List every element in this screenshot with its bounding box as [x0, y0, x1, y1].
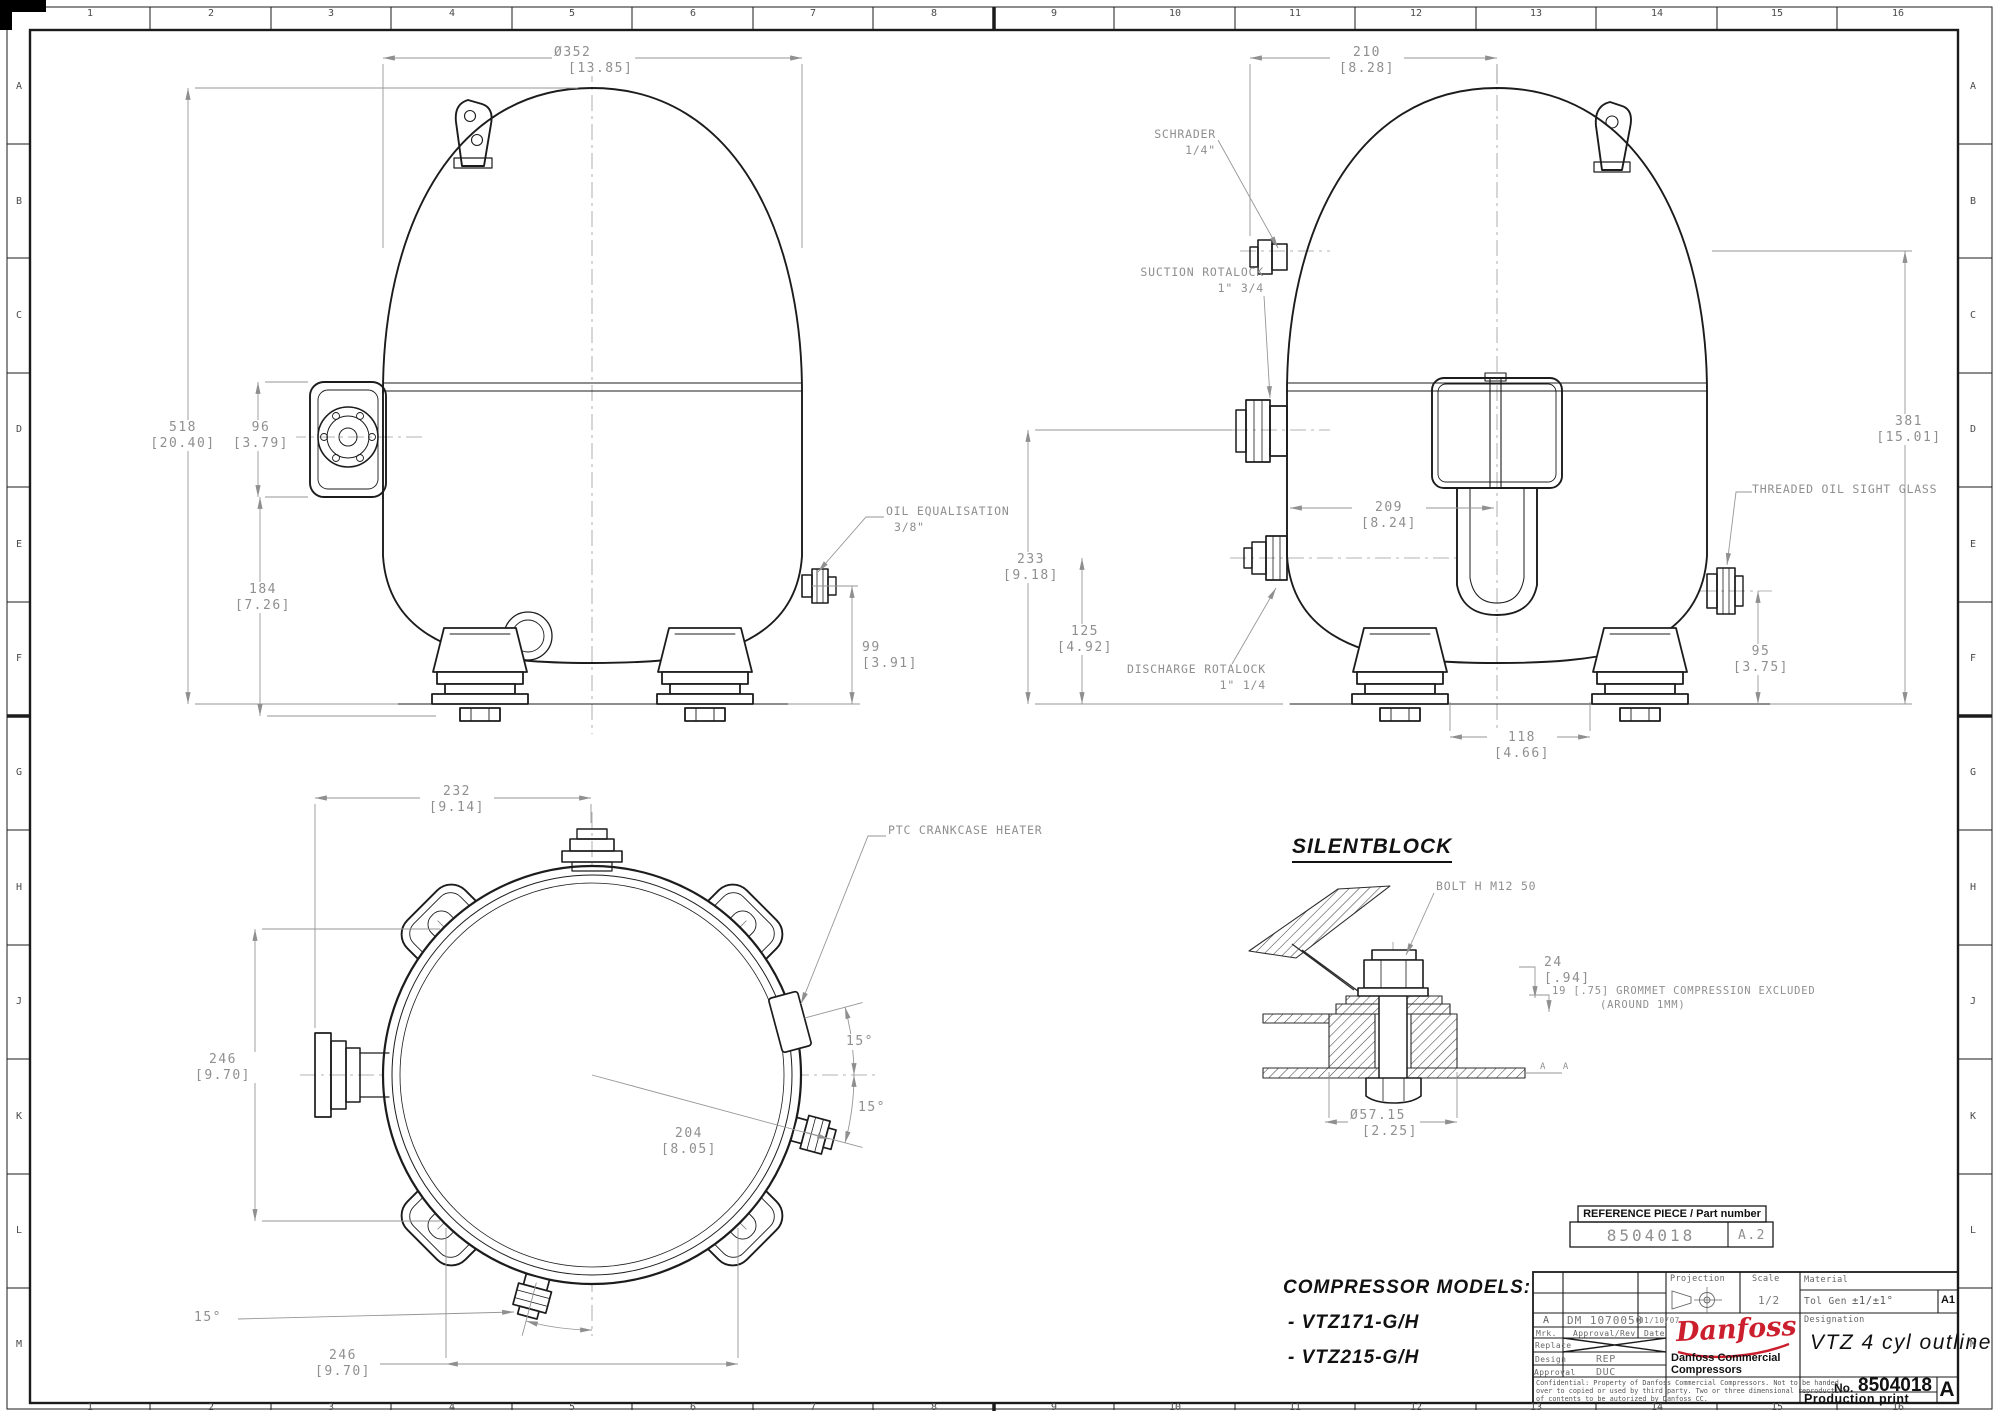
silentblock-linework: [1249, 886, 1525, 1103]
top-view-linework: [315, 829, 838, 1321]
dim-246-left: 246[9.70]: [186, 1052, 260, 1083]
silentblock-title: SILENTBLOCK: [1292, 835, 1452, 863]
danfoss-logo: Danfoss: [1675, 1311, 1797, 1348]
confidential-line3: of contents to be autorized by Danfoss C…: [1536, 1395, 1708, 1403]
zone-col-bottom: 14: [1646, 1402, 1668, 1413]
zone-col-top: 14: [1646, 8, 1668, 19]
zone-col-top: 5: [561, 8, 583, 19]
label-oil-equalisation: OIL EQUALISATION3/8": [886, 504, 1010, 535]
dim-232: 232[9.14]: [420, 784, 494, 815]
zone-col-top: 15: [1766, 8, 1788, 19]
label-bolt: BOLT H M12 50: [1436, 879, 1536, 895]
zone-col-bottom: 13: [1525, 1402, 1547, 1413]
zone-col-top: 8: [923, 8, 945, 19]
label-threaded-oil-sight-glass: THREADED OIL SIGHT GLASS: [1752, 482, 1937, 498]
zone-col-bottom: 4: [441, 1402, 463, 1413]
zone-row-left: J: [8, 996, 30, 1007]
tolerance-value: ±1/±1°: [1852, 1295, 1894, 1307]
zone-row-right: L: [1962, 1225, 1984, 1236]
zone-col-top: 6: [682, 8, 704, 19]
dim-96: 96[3.79]: [226, 420, 296, 451]
side-view-linework: [1236, 88, 1770, 721]
dim-125: 125[4.92]: [1050, 624, 1120, 655]
dim-210: 210[8.28]: [1330, 45, 1404, 76]
zone-row-right: D: [1962, 424, 1984, 435]
zone-row-right: E: [1962, 539, 1984, 550]
zone-row-right: J: [1962, 996, 1984, 1007]
zone-col-top: 10: [1164, 8, 1186, 19]
zone-row-right: F: [1962, 653, 1984, 664]
dim-204: 204[8.05]: [652, 1126, 726, 1157]
zone-col-bottom: 1: [79, 1402, 101, 1413]
zone-col-bottom: 2: [200, 1402, 222, 1413]
dim-angle-15-bottom: 15°: [192, 1310, 224, 1326]
zone-col-bottom: 15: [1766, 1402, 1788, 1413]
zone-col-top: 1: [79, 8, 101, 19]
dim-24: 24[.94]: [1542, 955, 1593, 986]
model-item-vtz215: - VTZ215-G/H: [1288, 1347, 1419, 1369]
design-value: REP: [1596, 1354, 1616, 1365]
zone-col-top: 4: [441, 8, 463, 19]
model-item-vtz171: - VTZ171-G/H: [1288, 1312, 1419, 1334]
replace-label: Replace: [1535, 1341, 1572, 1350]
label-discharge-rotalock: DISCHARGE ROTALOCK1" 1/4: [1078, 662, 1266, 693]
approval-value: DUC: [1596, 1367, 1616, 1378]
reference-part-number: 8504018: [1580, 1226, 1722, 1245]
section-marks-a-a: A A: [1538, 1062, 1576, 1073]
front-view-linework: [310, 88, 836, 721]
zone-col-bottom: 7: [802, 1402, 824, 1413]
dim-diameter-352: Ø352[13.85]: [552, 45, 635, 76]
designation-label: Designation: [1804, 1315, 1865, 1325]
designation-value: VTZ 4 cyl outline: [1810, 1331, 1992, 1355]
sheet-frame: [0, 0, 1992, 1411]
label-grommet-compression: 19 [.75] GROMMET COMPRESSION EXCLUDED(AR…: [1552, 984, 1816, 1012]
approval-rev-column-label: Approval/Rev: [1573, 1329, 1636, 1338]
date-column-label: Date: [1644, 1329, 1665, 1338]
design-label: Design: [1535, 1355, 1566, 1364]
zone-col-bottom: 3: [320, 1402, 342, 1413]
zone-col-top: 11: [1284, 8, 1306, 19]
dim-246-bottom: 246[9.70]: [306, 1348, 380, 1379]
zone-col-top: 12: [1405, 8, 1427, 19]
zone-row-left: B: [8, 196, 30, 207]
dim-118: 118[4.66]: [1487, 730, 1557, 761]
projection-label: Projection: [1670, 1274, 1725, 1284]
dim-99: 99[3.91]: [860, 640, 920, 671]
zone-row-left: K: [8, 1111, 30, 1122]
company-line1: Danfoss Commercial: [1671, 1352, 1780, 1364]
zone-row-left: C: [8, 310, 30, 321]
dim-95: 95[3.75]: [1726, 644, 1796, 675]
revision-mark: A: [1543, 1315, 1550, 1326]
zone-row-left: D: [8, 424, 30, 435]
mark-column-label: Mrk.: [1536, 1329, 1557, 1338]
sheet-revision-letter: A: [1937, 1378, 1957, 1402]
zone-row-left: M: [8, 1339, 30, 1350]
zone-row-right: B: [1962, 196, 1984, 207]
reference-revision: A.2: [1729, 1228, 1775, 1244]
revision-doc: DM 1070050: [1567, 1314, 1643, 1327]
zone-col-bottom: 5: [561, 1402, 583, 1413]
zone-col-bottom: 11: [1284, 1402, 1306, 1413]
zone-row-left: A: [8, 81, 30, 92]
zone-col-bottom: 12: [1405, 1402, 1427, 1413]
zone-row-right: H: [1962, 882, 1984, 893]
zone-row-right: G: [1962, 767, 1984, 778]
zone-col-bottom: 9: [1043, 1402, 1065, 1413]
label-schrader: SCHRADER1/4": [1100, 127, 1216, 158]
zone-row-left: L: [8, 1225, 30, 1236]
dim-233: 233[9.18]: [996, 552, 1066, 583]
zone-row-right: A: [1962, 81, 1984, 92]
material-label: Material: [1804, 1275, 1848, 1285]
dim-381: 381[15.01]: [1872, 414, 1946, 445]
zone-col-top: 3: [320, 8, 342, 19]
tolerance-label: Tol Gen: [1804, 1296, 1847, 1307]
zone-col-top: 16: [1887, 8, 1909, 19]
projection-symbol: [1672, 1287, 1722, 1313]
revision-date: 01/10/07: [1639, 1316, 1680, 1325]
zone-col-top: 13: [1525, 8, 1547, 19]
zone-col-top: 2: [200, 8, 222, 19]
dim-diameter-57-15: Ø57.15[2.25]: [1348, 1108, 1420, 1139]
approval-label: Approval: [1534, 1368, 1576, 1377]
scale-value: 1/2: [1758, 1294, 1780, 1307]
dim-209: 209[8.24]: [1352, 500, 1426, 531]
zone-row-right: C: [1962, 310, 1984, 321]
dim-angle-15-upper: 15°: [844, 1034, 876, 1050]
drawing-sheet: 1 2 3 4 5 6 7 8 9 10 11 12 13 14 15 16 1…: [0, 0, 2000, 1413]
zone-row-left: E: [8, 539, 30, 550]
label-suction-rotalock: SUCTION ROTALOCK1" 3/4: [1080, 265, 1264, 296]
zone-row-right: K: [1962, 1111, 1984, 1122]
dim-518: 518[20.40]: [146, 420, 220, 451]
drawing-linework: [0, 0, 2000, 1413]
reference-header: REFERENCE PIECE / Part number: [1578, 1208, 1766, 1220]
models-heading: COMPRESSOR MODELS:: [1283, 1277, 1531, 1299]
zone-col-bottom: 6: [682, 1402, 704, 1413]
zone-col-bottom: 8: [923, 1402, 945, 1413]
zone-row-left: H: [8, 882, 30, 893]
zone-col-top: 9: [1043, 8, 1065, 19]
dim-angle-15-lower: 15°: [856, 1100, 888, 1116]
zone-col-top: 7: [802, 8, 824, 19]
zone-row-left: F: [8, 653, 30, 664]
zone-col-bottom: 10: [1164, 1402, 1186, 1413]
label-ptc-crankcase-heater: PTC CRANKCASE HEATER: [888, 823, 1042, 839]
company-line2: Compressors: [1671, 1364, 1742, 1376]
scale-label: Scale: [1752, 1274, 1780, 1284]
dim-184: 184[7.26]: [226, 582, 300, 613]
zone-row-left: G: [8, 767, 30, 778]
sheet-size: A1: [1939, 1294, 1957, 1306]
